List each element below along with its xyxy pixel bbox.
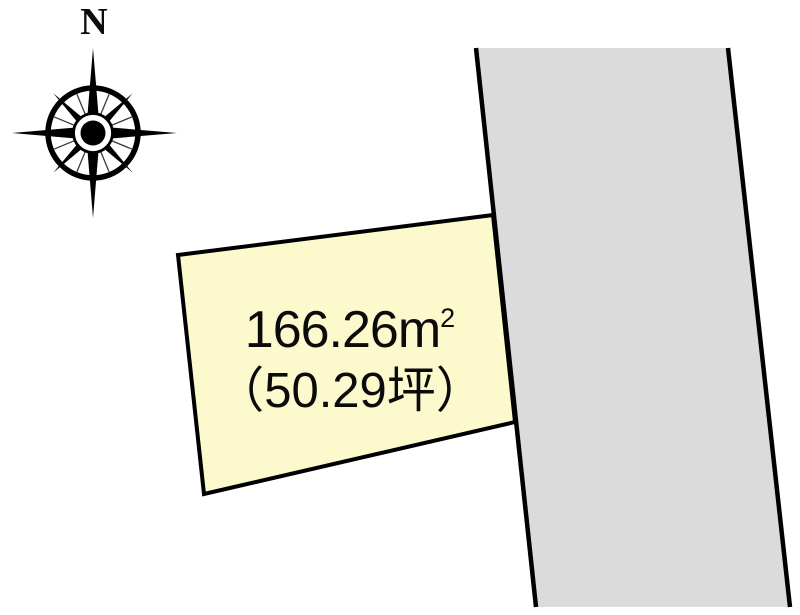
compass-rose-icon (0, 38, 188, 228)
plot-area-label: 166.26m2 （50.29坪） (175, 291, 525, 418)
plot-area-sqm: 166.26m2 (175, 291, 525, 357)
plot-area-sqm-unit: m (398, 301, 440, 359)
plot-area-tsubo: （50.29坪） (175, 364, 525, 418)
plot-area-sqm-value: 166.26 (245, 301, 398, 359)
plot-area-sqm-exponent: 2 (440, 303, 455, 333)
site-plan-canvas: N 166.26m2 （50.29坪） (0, 0, 800, 615)
north-label: N (64, 2, 124, 42)
